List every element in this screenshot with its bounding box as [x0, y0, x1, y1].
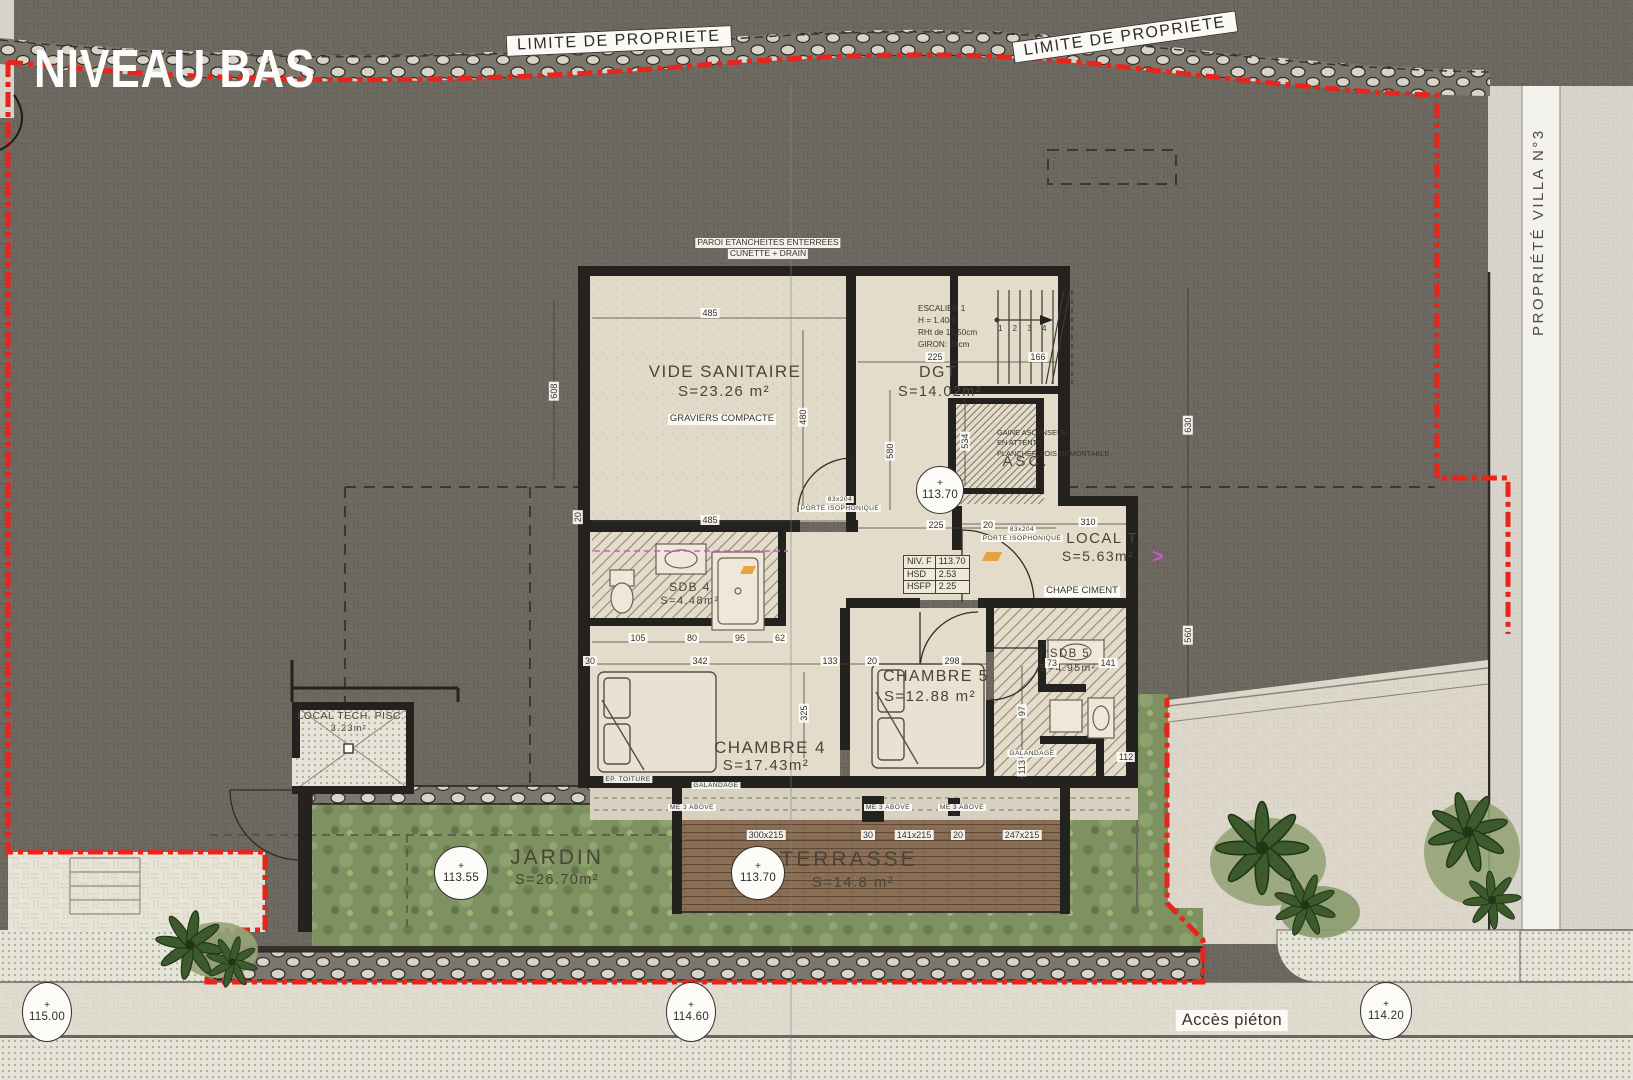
direction-chevron: >: [1152, 546, 1164, 569]
room-terrasse-area: S=14.8 m²: [812, 874, 894, 891]
plus-icon: +: [44, 1001, 50, 1011]
elevator-note-l2: EN ATTENTE: [997, 438, 1109, 448]
level-marker-terrasse: + 113.70: [731, 846, 785, 900]
plus-icon: +: [937, 479, 943, 489]
dim: 20: [981, 520, 995, 530]
room-vide-sanitaire-area: S=23.26 m²: [678, 383, 770, 400]
dim: 113: [1017, 758, 1027, 776]
dim: 225: [926, 520, 945, 530]
stair-tread: GIRON: 28cm: [918, 339, 977, 351]
room-local-tech-name: LOCAL TECH. PISC.: [297, 710, 404, 722]
door1-size: 83x204: [826, 496, 854, 503]
note-me-1: ME 3 ABOVE: [668, 804, 716, 811]
room-local-t-area: S=5.63m²: [1062, 548, 1134, 564]
dim: 95: [733, 633, 747, 643]
dim: 342: [690, 656, 709, 666]
level-table-cell: 2.25: [935, 581, 969, 594]
room-terrasse-name: TERRASSE: [780, 848, 917, 872]
plus-icon: +: [688, 1001, 694, 1011]
dim: 485: [700, 515, 719, 525]
room-chambre5-name: CHAMBRE 5: [883, 668, 989, 686]
room-jardin-area: S=26.70m²: [515, 872, 599, 888]
level-table-cell: NIV. F: [904, 556, 936, 569]
room-chambre4-name: CHAMBRE 4: [714, 738, 826, 758]
dim: 166: [1028, 352, 1047, 362]
site-note-line2: CUNETTE + DRAIN: [728, 249, 808, 259]
note-galandage-2: GALANDAGE: [1008, 750, 1057, 757]
door2-type: PORTE ISOPHONIQUE: [981, 535, 1063, 542]
plan-drawing: [0, 0, 1633, 1080]
level-marker-path-center: + 114.60: [666, 982, 716, 1042]
neighbor-property-label: PROPRIÉTÉ VILLA N°3: [1530, 128, 1547, 336]
room-dgt-area: S=14.02m²: [898, 384, 982, 400]
dim: 630: [1183, 416, 1193, 435]
dim: 141: [1098, 658, 1117, 668]
dim: 97: [1017, 704, 1027, 718]
stair-tread-numbers: 1 2 3 4: [998, 324, 1050, 333]
dim: 300x215: [747, 830, 786, 840]
level-table-cell: HSFP: [904, 581, 936, 594]
room-jardin-name: JARDIN: [510, 846, 604, 870]
dim: 534: [960, 432, 970, 451]
stair-title: ESCALIER 1: [918, 303, 977, 315]
dim: 298: [942, 656, 961, 666]
door2-size: 83x204: [1008, 526, 1036, 533]
elevator-note-l3: PLANCHER BOIS DEMONTABLE: [997, 449, 1109, 459]
dim: 62: [773, 633, 787, 643]
dim: 133: [820, 656, 839, 666]
room-sdb4-name: SDB 4: [669, 580, 711, 594]
elevator-note-l1: GAINE ASCENSEUR: [997, 428, 1109, 438]
dim: 560: [1183, 626, 1193, 645]
plus-icon: +: [1383, 1000, 1389, 1010]
dim: 20: [951, 830, 965, 840]
note-me-3: ME 3 ABOVE: [938, 804, 986, 811]
room-vide-sanitaire-note: GRAVIERS COMPACTE: [668, 414, 776, 425]
room-vide-sanitaire-name: VIDE SANITAIRE: [649, 362, 801, 382]
elevator-note: GAINE ASCENSEUR EN ATTENTE PLANCHER BOIS…: [997, 428, 1109, 459]
level-marker-path-east: + 114.20: [1360, 982, 1412, 1040]
room-local-t-name: LOCAL T.: [1066, 530, 1141, 547]
dim: 20: [865, 656, 879, 666]
page-title: NIVEAU BAS: [34, 38, 315, 100]
dim: 112: [1117, 752, 1135, 762]
room-local-tech-area: 3.23m²: [331, 723, 367, 733]
level-marker-path-west: + 115.00: [22, 982, 72, 1042]
room-dgt-name: DGT: [919, 364, 957, 382]
dim: 225: [925, 352, 944, 362]
dim: 30: [861, 830, 875, 840]
dim: 80: [685, 633, 699, 643]
dim: 480: [798, 408, 808, 427]
dim: 325: [799, 704, 809, 723]
note-me-2: ME 3 ABOVE: [864, 804, 912, 811]
room-sdb4-area: S=4.48m²: [660, 595, 719, 607]
floorplan-canvas: NIVEAU BAS LIMITE DE PROPRIETE LIMITE DE…: [0, 0, 1633, 1080]
room-chambre5-area: S=12.88 m²: [884, 688, 976, 705]
dim: 608: [549, 382, 559, 401]
level-table-cell: 113.70: [935, 556, 969, 569]
dim: 105: [628, 633, 647, 643]
pedestrian-access-label: Accès piéton: [1176, 1010, 1288, 1031]
dim: 73: [1045, 658, 1059, 668]
site-note-line1: PAROI ETANCHEITES ENTERREES: [695, 238, 840, 248]
terraced-area: [8, 852, 265, 932]
stair-start-dot: [995, 318, 1000, 323]
room-local-t-note: CHAPE CIMENT: [1044, 586, 1120, 597]
dim: 310: [1078, 517, 1097, 527]
plus-icon: +: [458, 862, 464, 872]
dim: 485: [700, 308, 719, 318]
level-table: NIV. F 113.70 HSD 2.53 HSFP 2.25: [903, 555, 970, 594]
note-galandage-1: GALANDAGE: [692, 782, 741, 789]
stair-note: ESCALIER 1 H = 1.40m RHt de 17.50cm GIRO…: [918, 303, 977, 351]
note-ep-toiture: EP. TOITURE: [603, 776, 652, 783]
plus-icon: +: [755, 862, 761, 872]
level-table-cell: HSD: [904, 568, 936, 581]
level-marker-plan: + 113.70: [916, 466, 964, 514]
level-table-cell: 2.53: [935, 568, 969, 581]
dim: 20: [573, 510, 583, 524]
dim: 247x215: [1003, 830, 1042, 840]
room-chambre4-area: S=17.43m²: [723, 757, 809, 774]
dim: 141x215: [895, 830, 934, 840]
stair-riser: RHt de 17.50cm: [918, 327, 977, 339]
dim: 30: [583, 656, 597, 666]
door1-type: PORTE ISOPHONIQUE: [799, 505, 881, 512]
stair-height: H = 1.40m: [918, 315, 977, 327]
dim: 580: [885, 442, 895, 461]
level-marker-jardin: + 113.55: [434, 846, 488, 900]
